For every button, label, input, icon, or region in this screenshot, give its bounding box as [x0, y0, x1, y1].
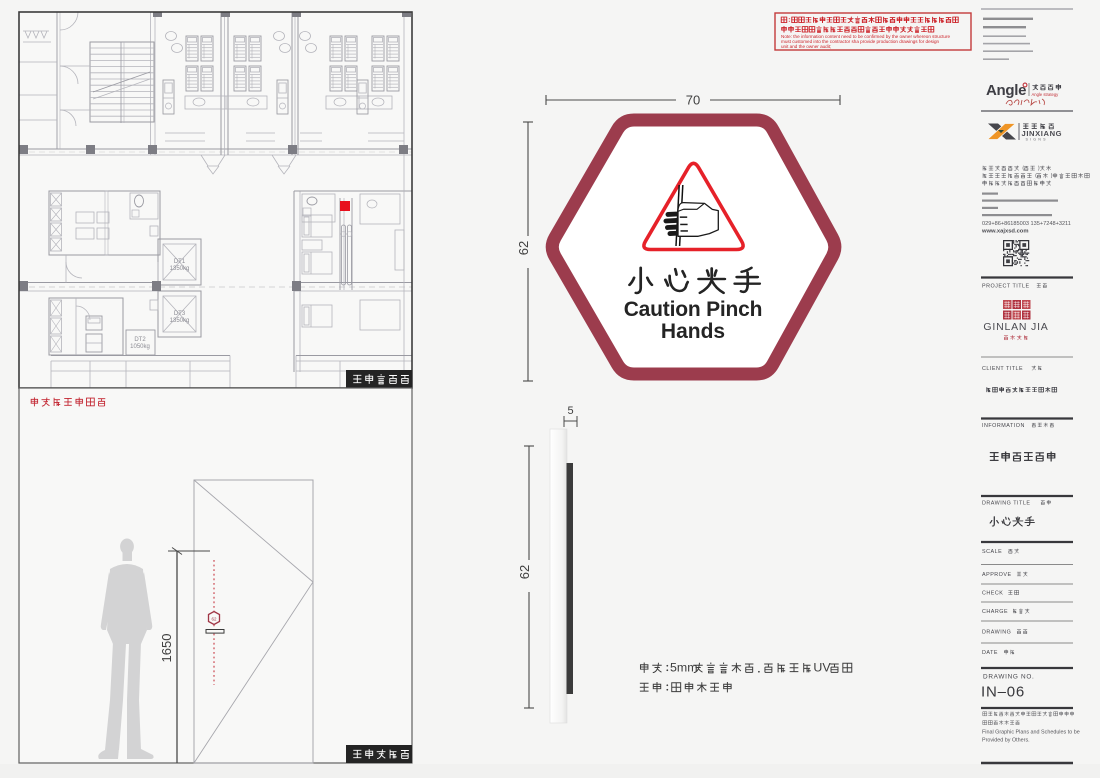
svg-text:5mm: 5mm — [670, 661, 698, 675]
svg-text:CHECK: CHECK — [982, 590, 1003, 596]
svg-text:70: 70 — [686, 93, 700, 108]
svg-text:PROJECT TITLE: PROJECT TITLE — [982, 284, 1030, 290]
svg-text:Angle strategy: Angle strategy — [1032, 92, 1060, 97]
svg-text:SIGNS: SIGNS — [1026, 137, 1048, 141]
svg-text:APPROVE: APPROVE — [982, 572, 1012, 578]
svg-text:INFORMATION: INFORMATION — [982, 423, 1025, 429]
svg-text:Hands: Hands — [661, 320, 725, 343]
svg-text:DT2: DT2 — [134, 337, 146, 343]
svg-text:DRAWING NO.: DRAWING NO. — [983, 674, 1035, 681]
svg-text:5: 5 — [567, 405, 573, 417]
svg-text:Final Graphic Plans and Schedu: Final Graphic Plans and Schedules to be — [982, 730, 1080, 736]
svg-text:unit and the owner audit;: unit and the owner audit; — [781, 44, 831, 49]
svg-text:Caution Pinch: Caution Pinch — [624, 298, 763, 321]
svg-text:Angle: Angle — [986, 82, 1026, 99]
svg-text:Provided by Others.: Provided by Others. — [982, 738, 1030, 744]
svg-text:1350kg: 1350kg — [170, 318, 190, 324]
svg-text:DT3: DT3 — [174, 311, 186, 317]
svg-text:SCALE: SCALE — [982, 549, 1002, 555]
svg-text:62: 62 — [211, 617, 217, 622]
svg-text:62: 62 — [517, 565, 532, 579]
svg-text:1350kg: 1350kg — [170, 266, 190, 272]
svg-text:1650: 1650 — [159, 634, 174, 663]
svg-text:DATE: DATE — [982, 650, 998, 656]
svg-text:62: 62 — [516, 241, 531, 255]
svg-text:CLIENT TITLE: CLIENT TITLE — [982, 366, 1023, 372]
svg-text:GINLAN JIA: GINLAN JIA — [983, 321, 1048, 333]
svg-text:www.xajxsd.com: www.xajxsd.com — [981, 229, 1029, 235]
svg-text:IN–06: IN–06 — [981, 684, 1025, 701]
svg-text:UV: UV — [813, 661, 831, 675]
svg-text:CHARGE: CHARGE — [982, 609, 1008, 615]
svg-text:029+86+86185003 135+7248+3211: 029+86+86185003 135+7248+3211 — [982, 221, 1071, 227]
svg-text:1050kg: 1050kg — [130, 344, 150, 350]
svg-text:DRAWING TITLE: DRAWING TITLE — [982, 501, 1030, 507]
svg-text:DRAWING: DRAWING — [982, 629, 1011, 635]
svg-text:DT1: DT1 — [174, 259, 186, 265]
